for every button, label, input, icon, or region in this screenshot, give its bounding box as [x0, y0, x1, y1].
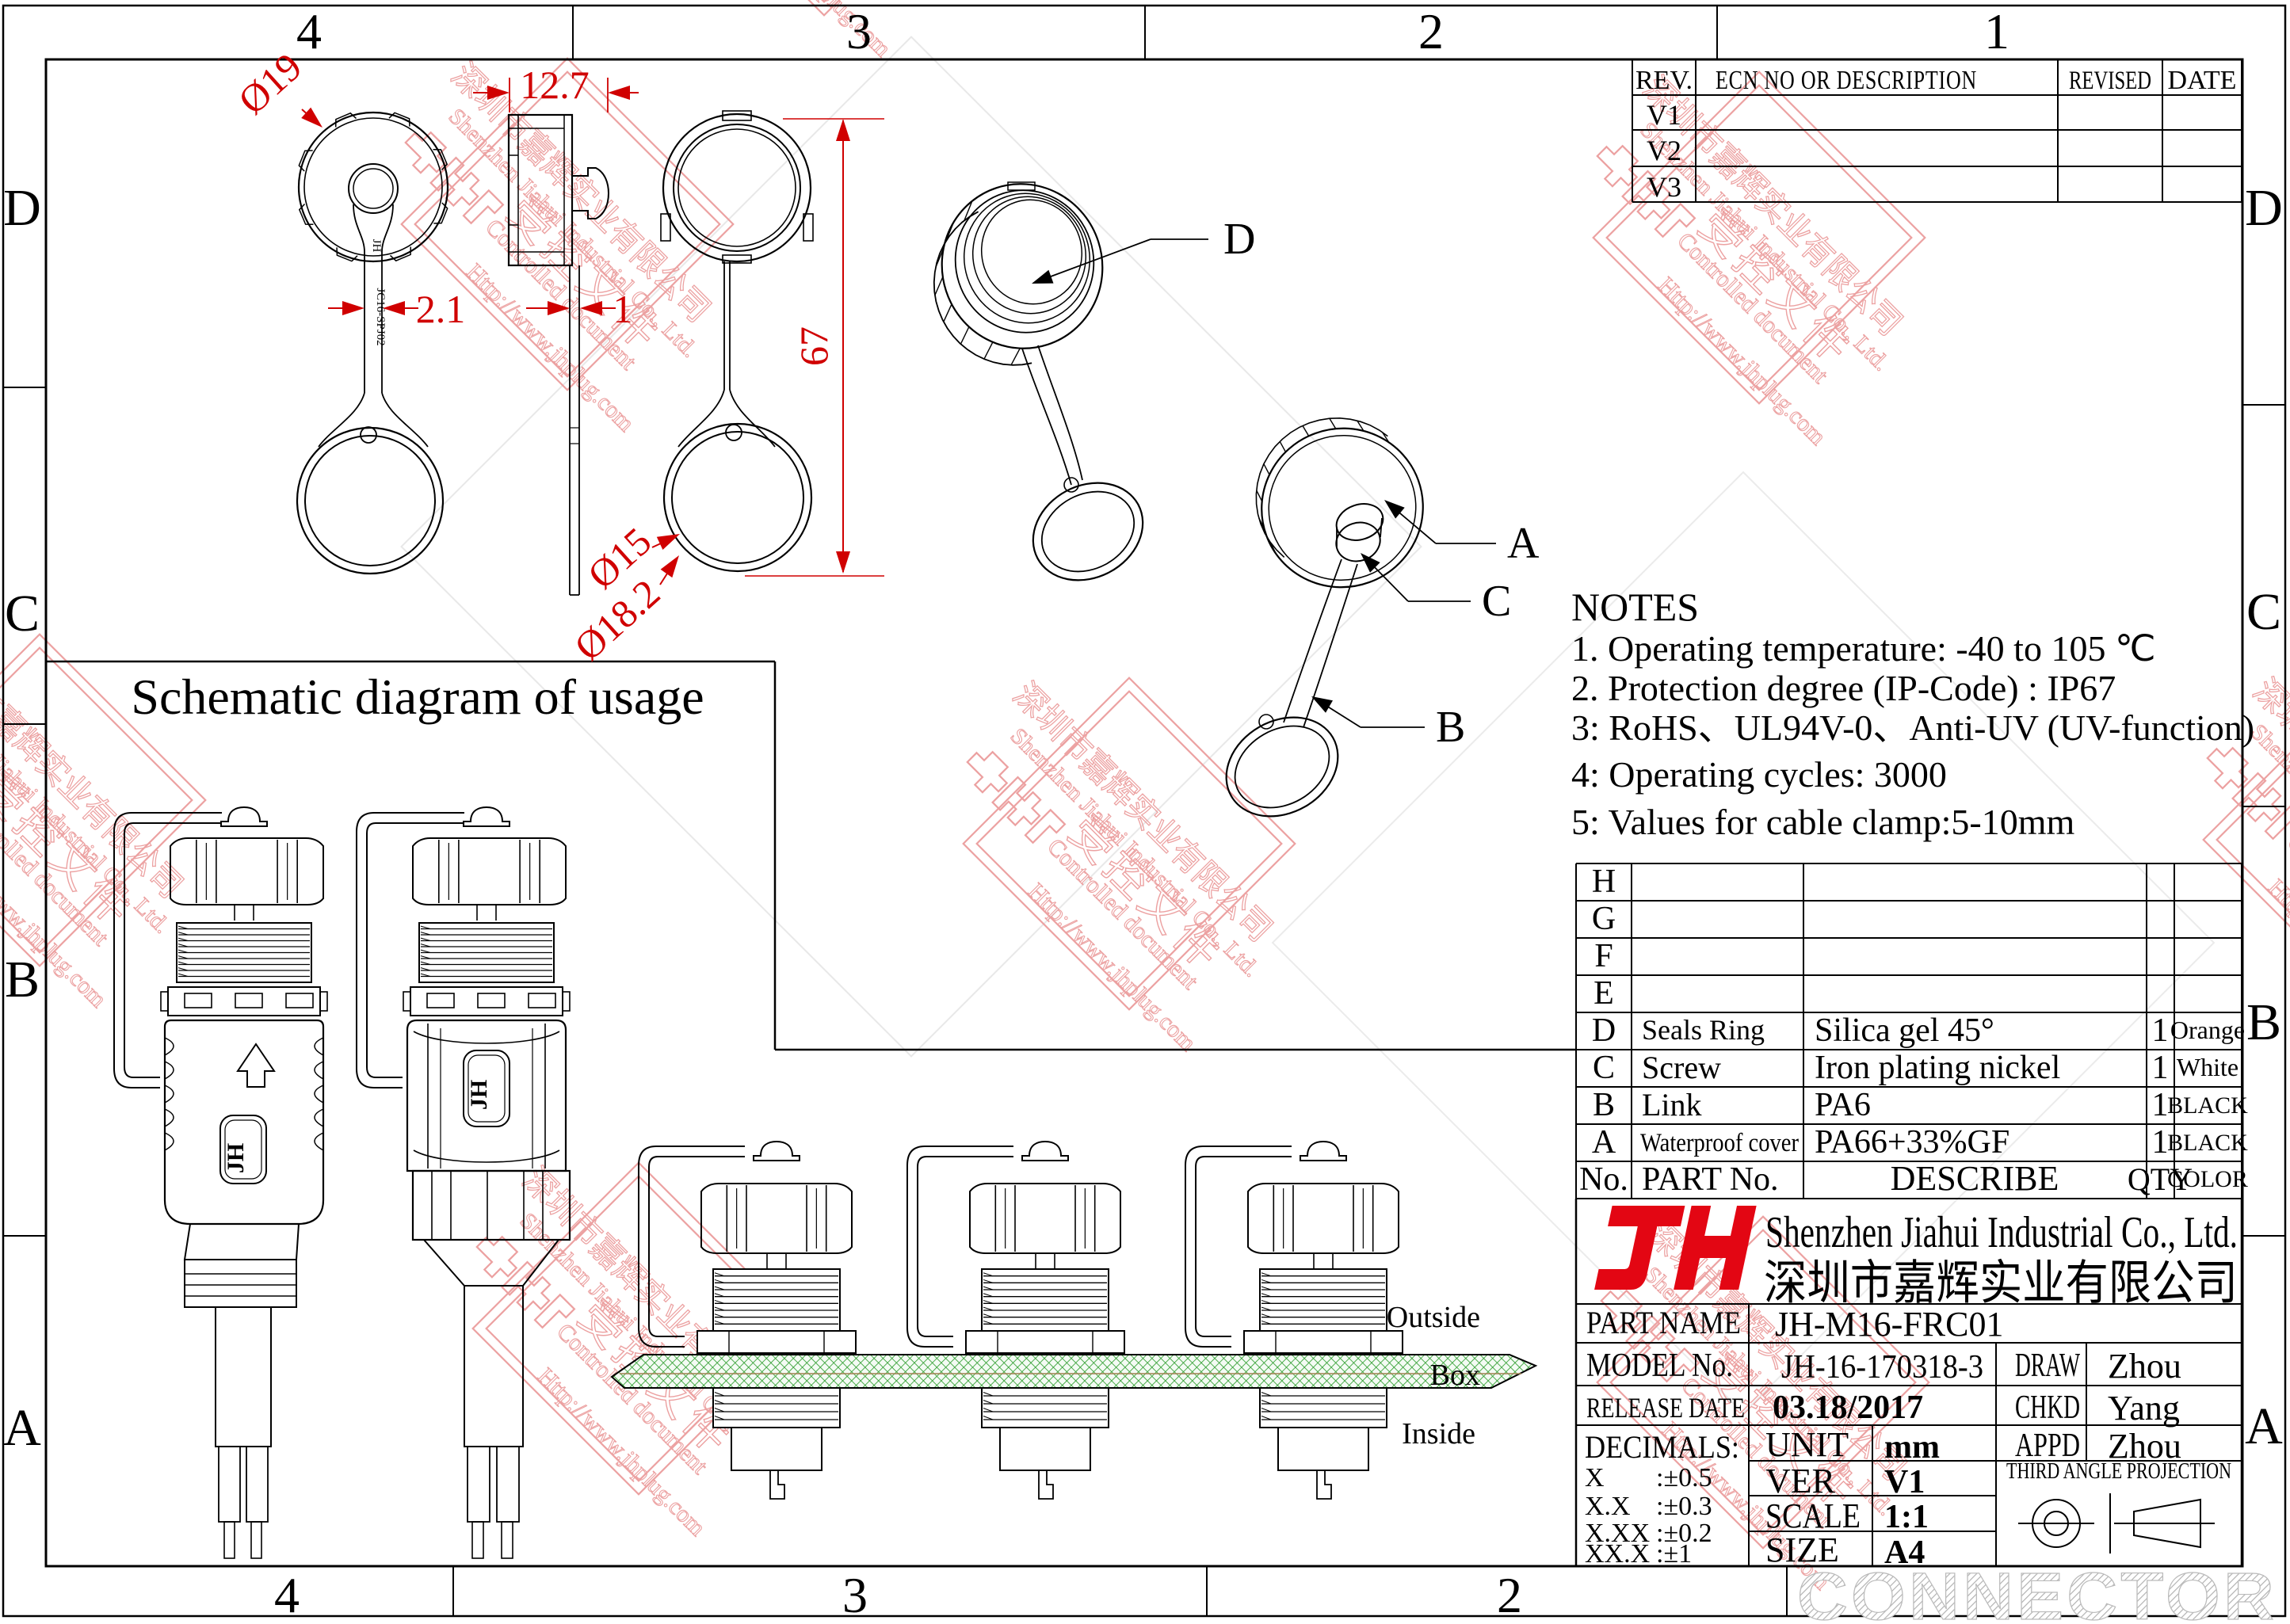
svg-text:C: C: [1593, 1050, 1615, 1086]
svg-text:12.7: 12.7: [520, 63, 590, 107]
svg-text:1: 1: [2152, 1124, 2169, 1161]
svg-text:Box: Box: [1430, 1359, 1480, 1392]
svg-text:5: Values for cable clamp:5-10: 5: Values for cable clamp:5-10mm: [1571, 802, 2075, 842]
svg-text:B: B: [5, 951, 40, 1008]
svg-text:2.1: 2.1: [416, 287, 466, 331]
svg-text:REV.: REV.: [1635, 66, 1693, 95]
svg-text:1: 1: [2152, 1087, 2169, 1123]
svg-text:DESCRIBE: DESCRIBE: [1891, 1159, 2059, 1198]
svg-text:B: B: [1436, 703, 1465, 752]
svg-text:V3: V3: [1647, 171, 1681, 203]
svg-text:JH: JH: [223, 1143, 249, 1173]
svg-text:B: B: [2246, 993, 2281, 1051]
svg-text:3: RoHS、UL94V-0、Anti-UV (UV-fu: 3: RoHS、UL94V-0、Anti-UV (UV-function): [1571, 707, 2254, 748]
svg-text:PA66+33%GF: PA66+33%GF: [1815, 1124, 2009, 1161]
svg-text:V1: V1: [1647, 99, 1681, 131]
svg-text:JH: JH: [466, 1080, 492, 1110]
svg-text:D: D: [3, 179, 41, 237]
svg-text:VER: VER: [1765, 1462, 1836, 1500]
svg-text:C: C: [2246, 583, 2281, 641]
svg-text:Inside: Inside: [1402, 1417, 1475, 1451]
svg-text:MODEL No.: MODEL No.: [1586, 1348, 1733, 1384]
svg-text:Orange: Orange: [2170, 1016, 2245, 1044]
svg-text::±0.3: :±0.3: [1656, 1492, 1712, 1521]
svg-text:JC16-SPJ02: JC16-SPJ02: [374, 288, 387, 345]
svg-text:3: 3: [846, 3, 872, 59]
svg-text:1:1: 1:1: [1884, 1499, 1929, 1535]
svg-text:V1: V1: [1884, 1464, 1925, 1500]
svg-text:Yang: Yang: [2108, 1389, 2180, 1428]
svg-text:DATE: DATE: [2168, 66, 2237, 95]
svg-text:SCALE: SCALE: [1765, 1496, 1861, 1535]
svg-text:F: F: [1594, 938, 1613, 974]
svg-text:Link: Link: [1642, 1087, 1702, 1123]
svg-text:Waterproof cover: Waterproof cover: [1640, 1129, 1799, 1157]
svg-text:UNIT: UNIT: [1765, 1425, 1849, 1464]
svg-text:A: A: [1592, 1124, 1616, 1161]
svg-text:CHKD: CHKD: [2015, 1390, 2080, 1426]
svg-text:1: 1: [1984, 3, 2009, 59]
svg-text:CONNECTOR: CONNECTOR: [1797, 1559, 2277, 1624]
svg-text:DECIMALS:: DECIMALS:: [1585, 1429, 1739, 1465]
svg-text:G: G: [1592, 901, 1616, 937]
svg-text::±0.5: :±0.5: [1656, 1463, 1712, 1492]
svg-text:67: 67: [792, 326, 836, 366]
svg-text:2: 2: [1418, 3, 1444, 59]
svg-text:REVISED: REVISED: [2069, 67, 2151, 95]
svg-text:No.: No.: [1579, 1161, 1628, 1198]
svg-text:D: D: [1592, 1012, 1616, 1049]
svg-text:D: D: [2245, 179, 2283, 237]
svg-text:PART NAME: PART NAME: [1586, 1305, 1741, 1340]
svg-text:C: C: [5, 585, 40, 642]
svg-text:03.18/2017: 03.18/2017: [1773, 1390, 1923, 1426]
svg-text:4: 4: [274, 1567, 300, 1623]
svg-text:DRAW: DRAW: [2015, 1348, 2080, 1384]
svg-text:Silica gel 45°: Silica gel 45°: [1815, 1012, 1994, 1049]
svg-text:B: B: [1593, 1087, 1615, 1123]
svg-text:Outside: Outside: [1387, 1301, 1480, 1334]
svg-text:Zhou: Zhou: [2108, 1347, 2181, 1386]
svg-text:E: E: [1593, 975, 1614, 1012]
svg-text:4: Operating cycles: 3000: 4: Operating cycles: 3000: [1571, 754, 1947, 795]
svg-text:JH: JH: [370, 239, 383, 253]
svg-text:Schematic diagram of usage: Schematic diagram of usage: [131, 669, 704, 725]
svg-text:COLOR: COLOR: [2167, 1166, 2248, 1192]
svg-text:Shenzhen Jiahui Industrial Co.: Shenzhen Jiahui Industrial Co., Ltd.: [1765, 1208, 2238, 1257]
svg-text:Seals Ring: Seals Ring: [1642, 1014, 1765, 1046]
svg-text:White: White: [2177, 1053, 2238, 1081]
svg-text:JH-M16-FRC01: JH-M16-FRC01: [1775, 1305, 2004, 1344]
svg-text:THIRD ANGLE PROJECTION: THIRD ANGLE PROJECTION: [2006, 1458, 2231, 1484]
svg-text:C: C: [1482, 577, 1511, 626]
svg-text:PA6: PA6: [1815, 1087, 1871, 1123]
svg-text:A: A: [2245, 1397, 2283, 1455]
svg-text:D: D: [1223, 215, 1255, 264]
svg-text:Screw: Screw: [1642, 1050, 1721, 1085]
svg-text:V2: V2: [1647, 135, 1681, 166]
svg-text:A: A: [1507, 519, 1540, 568]
svg-text:mm: mm: [1884, 1429, 1940, 1466]
svg-text:A: A: [3, 1399, 41, 1457]
svg-text:4: 4: [296, 3, 322, 59]
svg-text:XX.X: XX.X: [1585, 1539, 1650, 1569]
svg-text:3: 3: [842, 1567, 868, 1623]
svg-text:2. Protection degree (IP-Code): 2. Protection degree (IP-Code) : IP67: [1571, 668, 2116, 708]
svg-text:BLACK: BLACK: [2167, 1092, 2248, 1119]
svg-text:X.X: X.X: [1585, 1492, 1631, 1521]
svg-text:2: 2: [1497, 1567, 1522, 1623]
svg-text:ECN NO OR DESCRIPTION: ECN NO OR DESCRIPTION: [1716, 66, 1977, 95]
svg-text:X: X: [1585, 1463, 1605, 1492]
svg-text:1: 1: [2152, 1012, 2169, 1049]
svg-text:RELEASE DATE: RELEASE DATE: [1586, 1392, 1745, 1424]
svg-text:H: H: [1592, 863, 1616, 900]
svg-text:1. Operating temperature: -40: 1. Operating temperature: -40 to 105 ℃: [1571, 628, 2156, 669]
svg-text:Iron plating nickel: Iron plating nickel: [1815, 1050, 2060, 1086]
svg-text:NOTES: NOTES: [1571, 585, 1699, 629]
svg-text:1: 1: [613, 287, 633, 331]
svg-text:PART No.: PART No.: [1642, 1161, 1779, 1198]
svg-text:1: 1: [2152, 1050, 2169, 1086]
svg-text:BLACK: BLACK: [2167, 1130, 2248, 1156]
svg-text:JH-16-170318-3: JH-16-170318-3: [1781, 1349, 1983, 1386]
svg-text:深圳市嘉辉实业有限公司: 深圳市嘉辉实业有限公司: [1764, 1257, 2238, 1309]
svg-text::±1: :±1: [1656, 1539, 1692, 1569]
